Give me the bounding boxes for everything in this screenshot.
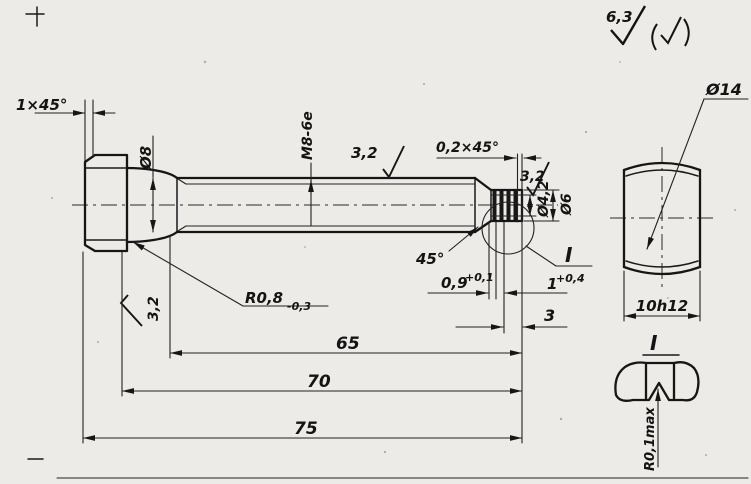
roughness-shank: 3,2	[351, 144, 404, 177]
dim-tip-land-label: 3	[544, 306, 555, 325]
dim-across-flats-label: 10h12	[636, 297, 688, 315]
dim-shank-diameter-label: Ø8	[137, 146, 155, 170]
paper-speckles	[51, 61, 736, 456]
dim-head-chamfer-label: 1×45°	[16, 96, 67, 114]
dim-tip-diameter-label: Ø6	[559, 193, 575, 216]
roughness-check-icon	[121, 295, 142, 326]
dim-head-chamfer: 1×45°	[16, 96, 115, 161]
rest-surfaces-icon	[652, 17, 689, 50]
thread-callout: M8-6e	[300, 111, 316, 226]
dim-fillet-radius-label: R0,8	[245, 289, 283, 307]
detail-reference-label: I	[565, 243, 573, 267]
dim-shank-diameter: Ø8	[137, 136, 155, 232]
dim-groove-width-tol: +0,1	[465, 271, 494, 284]
dim-neck-diameter-label: Ø4,2	[536, 180, 552, 218]
surface-finish-note: 6,3	[606, 6, 689, 50]
dim-runout-angle-label: 45°	[415, 250, 444, 268]
dim-neck-diameter: Ø4,2	[530, 180, 552, 218]
detail-view-I: I R0,1max	[615, 331, 698, 471]
groove-profile-outline	[615, 362, 698, 401]
dim-fillet-radius-tol: -0,3	[287, 300, 311, 313]
bolt-head-end-view: 10h12 Ø14	[610, 80, 748, 321]
dim-overall-length-label: 75	[294, 419, 318, 439]
dim-groove-width-label: 0,9	[441, 274, 468, 292]
roughness-shank-value: 3,2	[351, 144, 378, 162]
bolt-drawing-canvas: 6,3	[0, 0, 751, 484]
dim-detail-radius: R0,1max	[643, 389, 658, 471]
surface-finish-value: 6,3	[606, 8, 633, 26]
bolt-head-outline	[85, 155, 127, 251]
dim-fillet-radius: R0,8 -0,3	[133, 242, 328, 313]
dim-head-diameter-label: Ø14	[705, 80, 742, 99]
roughness-head-face-value: 3,2	[146, 296, 162, 321]
dimension-annotations: 1×45° Ø8 M8-6e 3,2 0,2×45°	[16, 96, 592, 443]
roughness-head-face: 3,2	[121, 295, 162, 326]
dim-grip-length-label: 70	[307, 372, 331, 392]
thread-callout-label: M8-6e	[300, 111, 316, 160]
dim-thread-length-label: 65	[336, 334, 360, 354]
dim-groove-pitch-tol: +0,4	[556, 272, 585, 285]
detail-reference-leader: I	[526, 243, 592, 267]
dim-head-diameter: Ø14	[647, 80, 748, 249]
dim-groove-width-pitch: 0,9 +0,1 1 +0,4	[428, 222, 585, 333]
dim-tip-chamfer-label: 0,2×45°	[436, 140, 499, 156]
thread-end-chamfer-top	[475, 178, 491, 190]
engineering-drawing-sheet: 6,3	[0, 0, 751, 484]
dim-detail-radius-label: R0,1max	[643, 407, 658, 471]
roughness-check-icon	[383, 146, 404, 177]
detail-view-title: I	[650, 331, 658, 355]
dim-tip-land: 3	[456, 306, 567, 327]
dim-lengths: 65 70 75	[83, 236, 522, 443]
